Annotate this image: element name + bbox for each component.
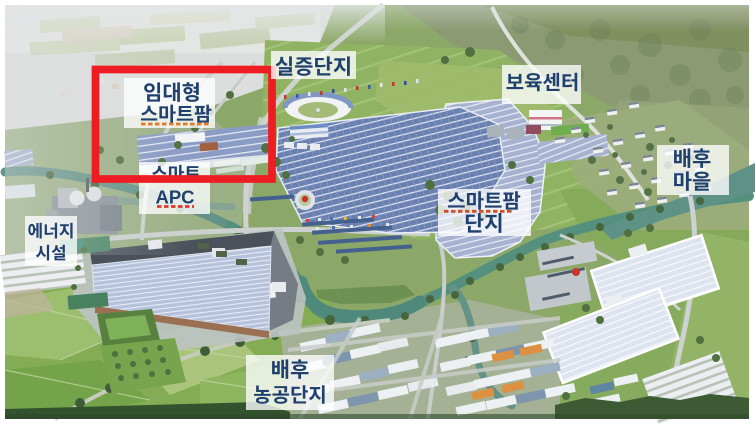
svg-text:APC: APC (155, 187, 194, 208)
